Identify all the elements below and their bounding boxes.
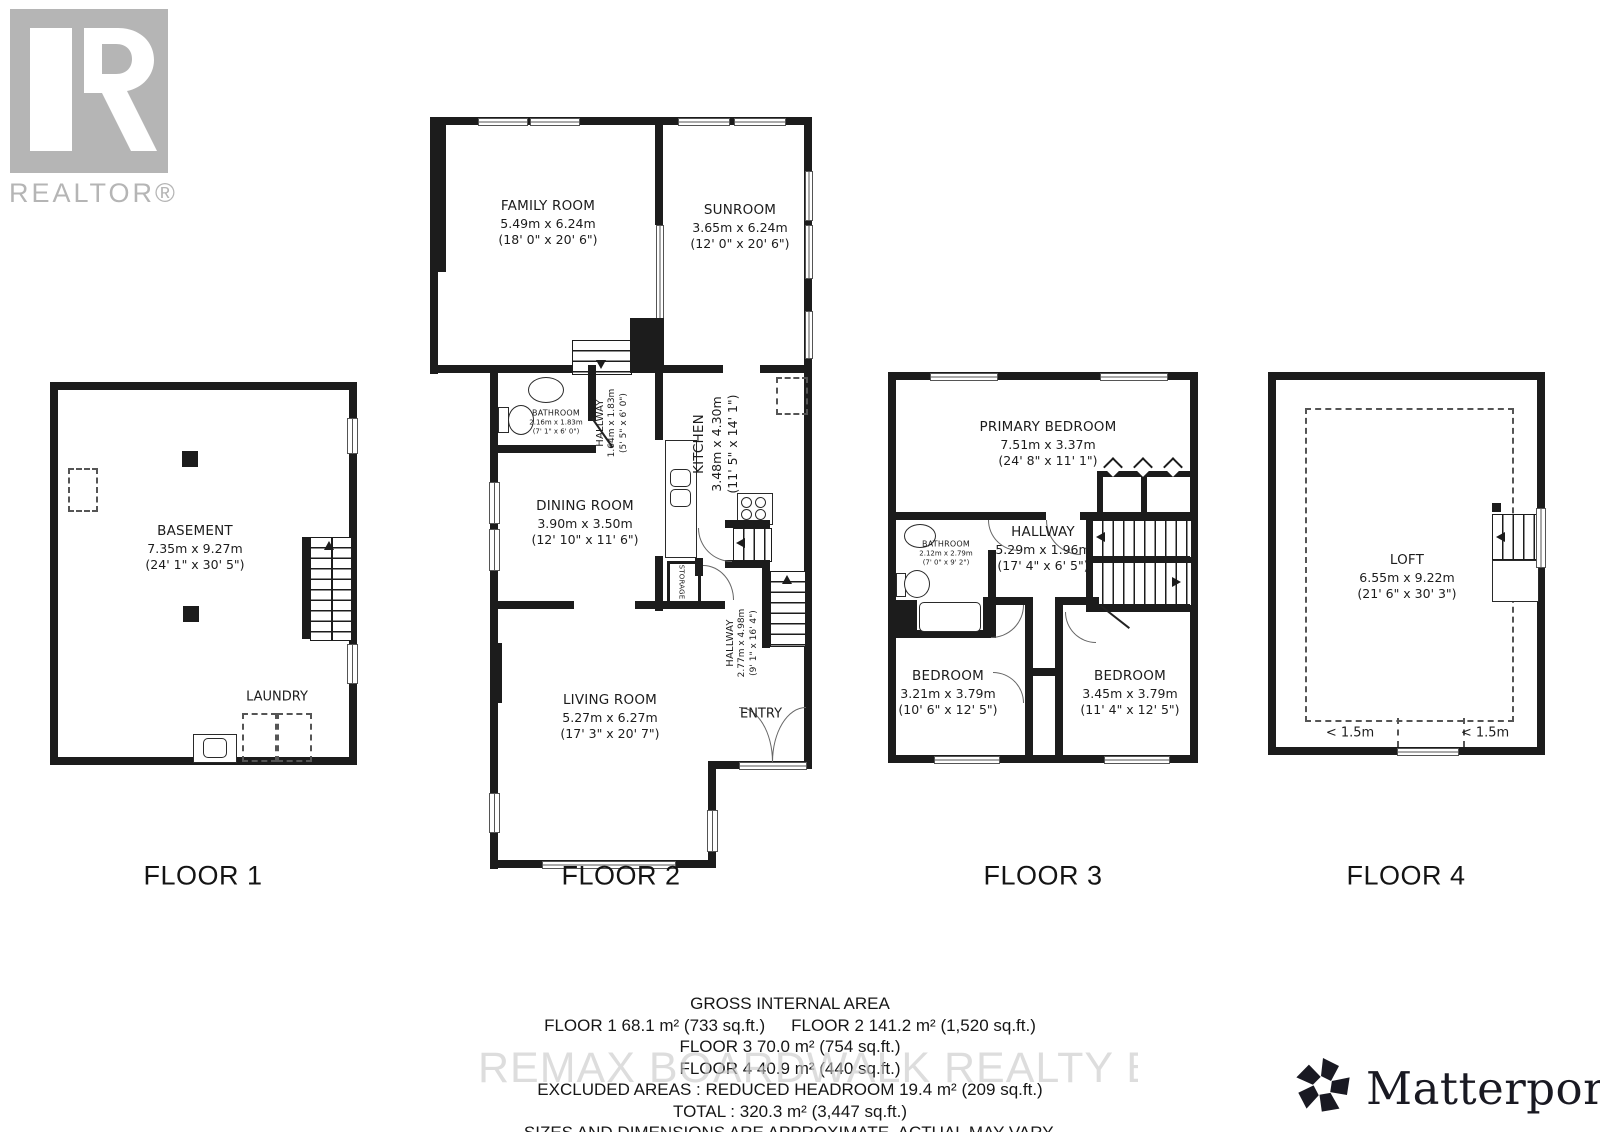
wall [695,558,703,576]
room-label-loft: LOFT 6.55m x 9.22m (21' 6" x 30' 3") [1357,552,1456,602]
room-name: BEDROOM [898,668,997,686]
wall [655,125,663,225]
room-dims-metric: 5.49m x 6.24m [498,216,597,232]
matterport-logo-icon [1292,1055,1354,1117]
sink [528,377,564,403]
wall [760,365,812,373]
wall [896,600,917,631]
realtor-logo [10,9,168,173]
room-dims-imperial: (5' 5" x 6' 0") [619,389,631,458]
window [489,529,500,571]
room-dims-metric: 3.65m x 6.24m [690,220,789,236]
window [930,373,998,381]
window [530,118,580,126]
room-dims-metric: 2.12m x 2.79m [919,550,972,559]
laundry-appliance-dashed [277,713,312,762]
room-dims-imperial: (17' 4" x 6' 5") [995,558,1090,574]
room-label-laundry: LAUNDRY [246,690,308,707]
kitchen-sink [670,469,691,487]
room-dims-imperial: (21' 6" x 30' 3") [1357,586,1456,602]
room-dims-metric: 1.64m x 1.83m [607,389,619,458]
room-dims-metric: 6.55m x 9.22m [1357,570,1456,586]
room-label-bathroom: BATHROOM 2.16m x 1.83m (7' 1" x 6' 0") [529,409,582,438]
room-label-dining-room: DINING ROOM 3.90m x 3.50m (12' 10" x 11'… [531,498,638,548]
summary-floor4: FLOOR 4 40.9 m² (440 sq.ft.) [415,1058,1165,1080]
wall [1025,597,1033,757]
window [805,171,813,221]
stove-burner-icon [755,509,766,520]
window [934,756,1000,764]
room-dims-imperial: (17' 3" x 20' 7") [560,726,659,742]
wall [490,601,574,609]
room-dims-imperial: (12' 0" x 20' 6") [690,236,789,252]
room-name: LAUNDRY [246,690,308,707]
laundry-appliance-dashed [242,713,277,762]
room-name: SUNROOM [690,202,789,220]
room-label-living-room: LIVING ROOM 5.27m x 6.27m (17' 3" x 20' … [560,692,659,742]
floor1-plan: BASEMENT 7.35m x 9.27m (24' 1" x 30' 5")… [50,382,357,765]
stair-landing [1492,560,1539,602]
room-label-primary-bedroom: PRIMARY BEDROOM 7.51m x 3.37m (24' 8" x … [980,419,1117,469]
room-label-hallway: HALLWAY 1.64m x 1.83m (5' 5" x 6' 0") [594,389,630,458]
window [489,482,500,524]
column [183,606,199,622]
window [489,793,500,833]
summary-floor2: FLOOR 2 141.2 m² (1,520 sq.ft.) [791,1015,1036,1037]
window [347,418,358,454]
stairs-direction-arrow-icon [1172,577,1181,587]
room-dims-imperial: (11' 5" x 14' 1") [725,394,741,493]
room-name: BATHROOM [919,540,972,550]
room-dims-imperial: (9' 1" x 16' 4") [749,609,761,678]
wall [896,512,1046,520]
wall [1055,597,1063,757]
room-dims-imperial: (18' 0" x 20' 6") [498,232,597,248]
headroom-value: < 1.5m [1461,726,1509,743]
window [1397,748,1459,756]
room-dims-imperial: (7' 0" x 9' 2") [919,559,972,568]
window [656,225,664,327]
column [182,451,198,467]
entry-threshold [739,762,807,770]
room-label-storage: STORAGE [676,565,685,600]
realtor-wordmark: REALTOR® [9,178,178,209]
headroom-value: < 1.5m [1326,726,1374,743]
floor4-plan: LOFT 6.55m x 9.22m (21' 6" x 30' 3") < 1… [1268,372,1545,755]
window [805,311,813,359]
window [1536,508,1546,568]
window [678,118,730,126]
room-label-entry: ENTRY [740,707,782,724]
room-label-family-room: FAMILY ROOM 5.49m x 6.24m (18' 0" x 20' … [498,198,597,248]
wall [1097,471,1103,518]
headroom-label-left: < 1.5m [1326,726,1374,743]
window [734,118,786,126]
bathtub [919,602,981,632]
room-dims-metric: 2.16m x 1.83m [529,419,582,428]
room-dims-metric: 2.77m x 4.98m [737,609,749,678]
area-summary: GROSS INTERNAL AREA FLOOR 1 68.1 m² (733… [415,993,1165,1132]
floorplan-sheet: REALTOR® BASEMENT 7.35m x 9.27m (24' 1" … [0,0,1600,1132]
room-dims-metric: 3.45m x 3.79m [1080,686,1179,702]
room-dims-imperial: (24' 8" x 11' 1") [980,453,1117,469]
wall [430,117,446,272]
wall [725,520,770,528]
summary-floor1: FLOOR 1 68.1 m² (733 sq.ft.) [544,1015,765,1037]
stairs-direction-arrow-icon [1096,532,1105,542]
room-dims-metric: 5.29m x 1.96m [995,542,1090,558]
room-dims-metric: 3.21m x 3.79m [898,686,997,702]
summary-excluded: EXCLUDED AREAS : REDUCED HEADROOM 19.4 m… [415,1079,1165,1101]
room-name: LIVING ROOM [560,692,659,710]
fridge-dashed [776,377,808,415]
wall [430,264,438,374]
door-arc [703,565,734,600]
room-label-bedroom-right: BEDROOM 3.45m x 3.79m (11' 4" x 12' 5") [1080,668,1179,718]
room-name: HALLWAY [724,609,737,678]
stairs-direction-arrow-icon [1496,532,1505,542]
room-name: LOFT [1357,552,1456,570]
reduced-headroom-boundary [1397,718,1399,747]
window [347,644,358,684]
room-dims-metric: 3.90m x 3.50m [531,516,638,532]
room-name: BATHROOM [529,409,582,419]
room-name: DINING ROOM [531,498,638,516]
room-dims-imperial: (10' 6" x 12' 5") [898,702,997,718]
window [478,118,528,126]
headroom-label-right: < 1.5m [1461,726,1509,743]
stairs-direction-arrow-icon [324,541,334,550]
stairs [572,340,632,375]
wall [663,365,723,373]
stairs-direction-arrow-icon [736,538,745,548]
fireplace [490,643,502,703]
room-name: PRIMARY BEDROOM [980,419,1117,437]
room-dims-metric: 7.35m x 9.27m [145,541,244,557]
window [805,225,813,279]
basement-dashed-area [68,468,98,512]
floor3-plan: PRIMARY BEDROOM 7.51m x 3.37m (24' 8" x … [888,372,1198,763]
room-dims-imperial: (7' 1" x 6' 0") [529,428,582,437]
column [1492,503,1501,512]
wall [430,365,572,373]
stairs-direction-arrow-icon [596,360,606,369]
summary-title: GROSS INTERNAL AREA [415,993,1165,1015]
stove-burner-icon [755,497,766,508]
matterport-wordmark: Matterport® [1366,1062,1600,1115]
wall [490,445,596,453]
room-label-bedroom-left: BEDROOM 3.21m x 3.79m (10' 6" x 12' 5") [898,668,997,718]
stairs [310,537,352,641]
wall [983,597,991,638]
room-dims-imperial: (24' 1" x 30' 5") [145,557,244,573]
floor3-caption: FLOOR 3 [983,861,1102,892]
room-name: ENTRY [740,707,782,724]
door-arc [698,528,732,562]
room-label-hallway2: HALLWAY 2.77m x 4.98m (9' 1" x 16' 4") [724,609,760,678]
floor4-caption: FLOOR 4 [1346,861,1465,892]
room-name: HALLWAY [594,389,607,458]
summary-floor3: FLOOR 3 70.0 m² (754 sq.ft.) [679,1036,900,1058]
room-label-basement: BASEMENT 7.35m x 9.27m (24' 1" x 30' 5") [145,523,244,573]
stove-burner-icon [741,497,752,508]
floor1-caption: FLOOR 1 [143,861,262,892]
room-name: FAMILY ROOM [498,198,597,216]
floor2-caption: FLOOR 2 [561,861,680,892]
room-dims-metric: 5.27m x 6.27m [560,710,659,726]
room-name: KITCHEN [691,394,709,493]
room-name: BASEMENT [145,523,244,541]
room-dims-imperial: (12' 10" x 11' 6") [531,532,638,548]
room-name: HALLWAY [995,524,1090,542]
kitchen-sink [670,489,691,507]
wall [1063,597,1099,605]
realtor-logo-icon [10,9,168,173]
room-label-bathroom: BATHROOM 2.12m x 2.79m (7' 0" x 9' 2") [919,540,972,569]
window [1100,373,1168,381]
stove-burner-icon [741,509,752,520]
wall [1141,471,1147,518]
room-label-kitchen: KITCHEN 3.48m x 4.30m (11' 5" x 14' 1") [691,394,741,493]
summary-floors-line: FLOOR 1 68.1 m² (733 sq.ft.)FLOOR 2 141.… [415,1015,1165,1058]
summary-total: TOTAL : 320.3 m² (3,447 sq.ft.) [415,1101,1165,1123]
window [707,810,718,852]
room-label-hallway: HALLWAY 5.29m x 1.96m (17' 4" x 6' 5") [995,524,1090,574]
wall [302,537,310,639]
room-name: STORAGE [676,565,685,600]
floor2-plan: FAMILY ROOM 5.49m x 6.24m (18' 0" x 20' … [430,117,812,869]
wall [762,568,770,648]
toilet [904,570,930,598]
room-name: BEDROOM [1080,668,1179,686]
wall [655,375,663,440]
wall [1025,668,1063,676]
stairs [1092,520,1192,558]
room-dims-metric: 3.48m x 4.30m [709,394,725,493]
room-dims-metric: 7.51m x 3.37m [980,437,1117,453]
room-dims-imperial: (11' 4" x 12' 5") [1080,702,1179,718]
window [1104,756,1170,764]
wall [630,318,664,373]
room-label-sunroom: SUNROOM 3.65m x 6.24m (12' 0" x 20' 6") [690,202,789,252]
summary-disclaimer: SIZES AND DIMENSIONS ARE APPROXIMATE, AC… [415,1122,1165,1132]
wall [635,601,725,609]
washer-dryer-drum [203,738,227,758]
stairs-direction-arrow-icon [782,575,792,584]
